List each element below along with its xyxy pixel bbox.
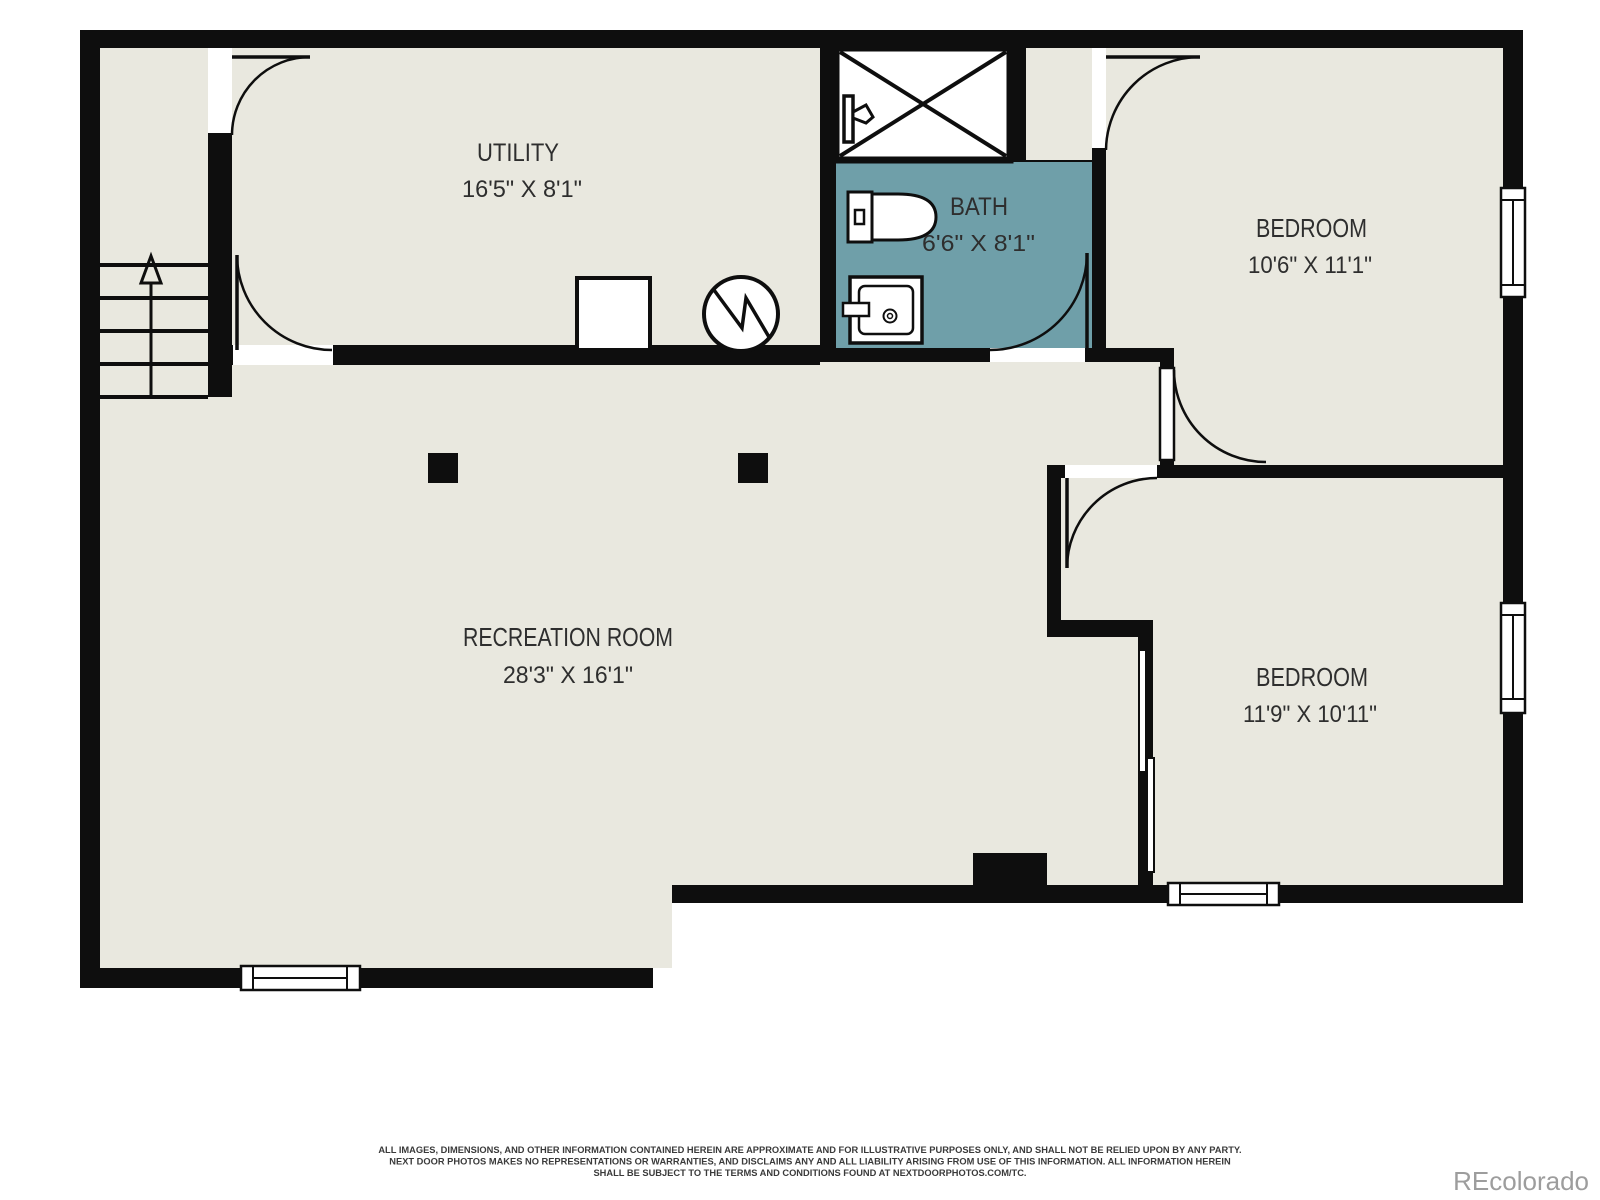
- support-post: [738, 453, 768, 483]
- room-dims-utility: 16'5" X 8'1": [462, 176, 582, 203]
- disclaimer-line: SHALL BE SUBJECT TO THE TERMS AND CONDIT…: [593, 1168, 1026, 1178]
- support-post: [428, 453, 458, 483]
- door-leaf: [1160, 368, 1174, 460]
- room-dims-bedroom-top: 10'6" X 11'1": [1248, 252, 1372, 279]
- floor-plan-svg: UTILITY 16'5" X 8'1" BATH 6'6" X 8'1" BE…: [0, 0, 1600, 1200]
- shower: [836, 48, 1010, 160]
- floor-plate: [100, 48, 1503, 968]
- room-label-bedroom-bottom: BEDROOM: [1256, 662, 1368, 692]
- water-heater-circle-icon: [704, 277, 778, 351]
- room-label-bath: BATH: [950, 193, 1008, 221]
- appliance-square-icon: [577, 278, 650, 350]
- window-symbol: [1501, 188, 1525, 297]
- watermark-recolorado: REcolorado: [1453, 1166, 1589, 1196]
- room-dims-recreation: 28'3" X 16'1": [503, 662, 633, 689]
- bath-right-wall: [1092, 148, 1106, 348]
- sink-vanity-icon: [843, 277, 922, 343]
- window-symbol: [1168, 883, 1279, 905]
- window-symbol: [1501, 603, 1525, 713]
- disclaimer-line: ALL IMAGES, DIMENSIONS, AND OTHER INFORM…: [378, 1145, 1241, 1155]
- disclaimer: ALL IMAGES, DIMENSIONS, AND OTHER INFORM…: [378, 1145, 1241, 1178]
- room-dims-bedroom-bottom: 11'9" X 10'11": [1243, 701, 1377, 728]
- room-label-utility: UTILITY: [477, 139, 559, 167]
- room-dims-bath: 6'6" X 8'1": [922, 230, 1035, 256]
- exterior-walls: [80, 30, 1523, 988]
- wall-jog: [973, 853, 1047, 885]
- window-symbol: [241, 966, 360, 990]
- room-label-bedroom-top: BEDROOM: [1256, 213, 1367, 243]
- room-label-recreation: RECREATION ROOM: [463, 622, 673, 652]
- floor-plan-page: UTILITY 16'5" X 8'1" BATH 6'6" X 8'1" BE…: [0, 0, 1600, 1200]
- closet-left-wall: [1047, 465, 1061, 637]
- disclaimer-line: NEXT DOOR PHOTOS MAKES NO REPRESENTATION…: [389, 1157, 1231, 1167]
- closet-top-wall: [1047, 620, 1153, 637]
